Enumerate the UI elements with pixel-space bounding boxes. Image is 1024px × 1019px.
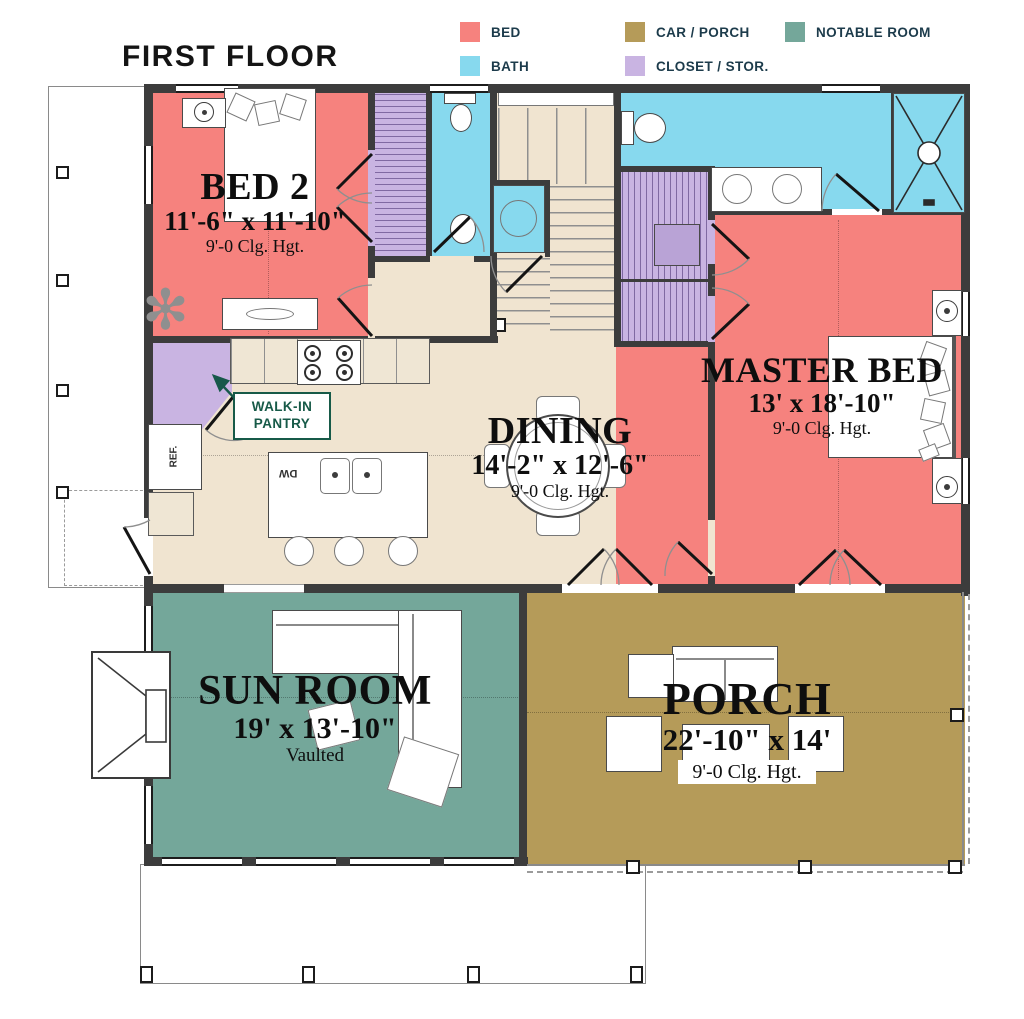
- room-label-porch: PORCH 22'-10" x 14' 9'-0 Clg. Hgt.: [592, 676, 902, 784]
- room-name: DINING: [420, 412, 700, 451]
- legend-swatch-bath: [460, 56, 480, 76]
- room-name: MASTER BED: [672, 352, 972, 389]
- room-label-bed2: BED 2 11'-6" x 11'-10" 9'-0 Clg. Hgt.: [110, 168, 400, 256]
- legend-swatch-bed: [460, 22, 480, 42]
- floor-plan: ✻ REF. DW: [0, 0, 1024, 1019]
- linework-overlay: [0, 0, 1024, 1019]
- legend-swatch-notable: [785, 22, 805, 42]
- room-name: PORCH: [592, 676, 902, 723]
- legend-item-car-porch: CAR / PORCH: [625, 22, 750, 42]
- room-ceiling-note: 9'-0 Clg. Hgt.: [672, 419, 972, 437]
- legend-label: BATH: [491, 59, 529, 74]
- room-dimensions: 22'-10" x 14': [592, 724, 902, 756]
- legend-label: BED: [491, 25, 521, 40]
- room-dimensions: 11'-6" x 11'-10": [110, 208, 400, 236]
- room-label-sunroom: SUN ROOM 19' x 13'-10" Vaulted: [160, 670, 470, 766]
- legend-item-bath: BATH: [460, 56, 529, 76]
- fireplace-icon: [92, 652, 170, 778]
- room-ceiling-note: 9'-0 Clg. Hgt.: [420, 482, 700, 500]
- legend-swatch-car-porch: [625, 22, 645, 42]
- pantry-callout: WALK-IN PANTRY: [233, 392, 331, 440]
- legend-item-notable: NOTABLE ROOM: [785, 22, 931, 42]
- room-dimensions: 13' x 18'-10": [672, 390, 972, 418]
- shower-glyph: [896, 96, 962, 210]
- room-name: BED 2: [110, 168, 400, 207]
- room-label-dining: DINING 14'-2" x 12'-6" 9'-0 Clg. Hgt.: [420, 412, 700, 501]
- pantry-callout-line2: PANTRY: [237, 416, 327, 433]
- room-ceiling-note: 9'-0 Clg. Hgt.: [678, 760, 815, 784]
- legend-item-bed: BED: [460, 22, 521, 42]
- page-title: FIRST FLOOR: [122, 40, 338, 74]
- legend-swatch-closet: [625, 56, 645, 76]
- legend-label: CLOSET / STOR.: [656, 59, 769, 74]
- legend-label: NOTABLE ROOM: [816, 25, 931, 40]
- room-ceiling-note: 9'-0 Clg. Hgt.: [110, 237, 400, 255]
- legend-item-closet: CLOSET / STOR.: [625, 56, 769, 76]
- room-ceiling-note: Vaulted: [160, 746, 470, 765]
- pantry-callout-line1: WALK-IN: [237, 399, 327, 416]
- room-dimensions: 19' x 13'-10": [160, 714, 470, 745]
- legend-label: CAR / PORCH: [656, 25, 750, 40]
- room-name: SUN ROOM: [160, 670, 470, 713]
- room-label-master: MASTER BED 13' x 18'-10" 9'-0 Clg. Hgt.: [672, 352, 972, 438]
- room-dimensions: 14'-2" x 12'-6": [420, 452, 700, 481]
